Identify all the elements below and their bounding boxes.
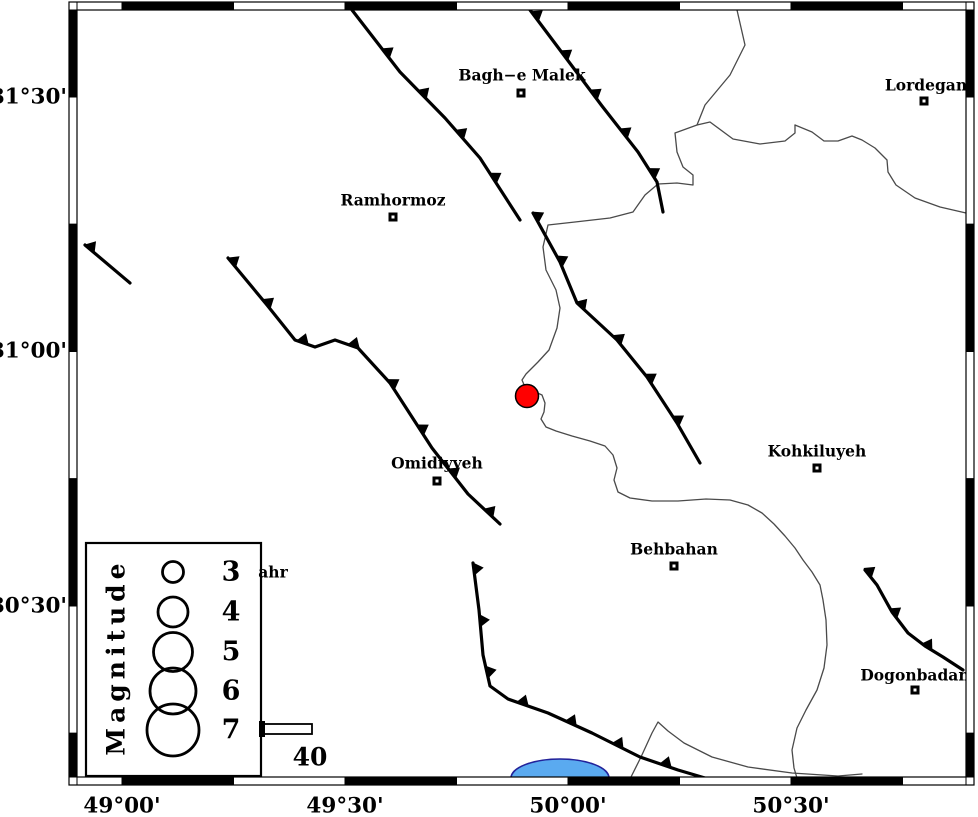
frame-segment-left [69,479,77,606]
scale-bar-rect [262,724,312,734]
axis-label-longitude: 49°00' [83,794,160,817]
city-marker-center [520,92,523,95]
legend-value: 4 [222,597,241,628]
magnitude-legend: Magnitude34567 [86,543,261,776]
axis-label-longitude: 50°30' [752,794,829,817]
city-marker-center [392,216,395,219]
scale-bar-cap [259,721,265,737]
frame-segment-left [69,97,77,224]
axis-label-latitude: 31°30' [0,85,67,110]
legend-value: 5 [222,637,241,668]
frame-segment-right [966,97,974,224]
city-label: Lordegan [885,76,967,95]
legend-value: 3 [222,557,241,588]
frame-segment-top [903,2,967,10]
frame-segment-top [345,2,457,10]
partial-city-label: ahr [258,563,288,582]
city-label: Kohkiluyeh [768,442,867,461]
frame-segment-right [966,352,974,479]
frame-segment-bottom [457,777,569,785]
frame-segment-bottom [345,777,457,785]
legend-value: 7 [222,715,241,746]
city-marker-center [914,689,917,692]
city-label: Ramhormoz [341,191,446,210]
frame-segment-top [122,2,234,10]
city-marker-center [923,100,926,103]
frame-segment-bottom [791,777,903,785]
frame-segment-top [680,2,792,10]
city-label: Bagh−e Malek [458,66,585,85]
legend-value: 6 [222,676,241,707]
frame-segment-left [69,224,77,351]
frame-segment-bottom [903,777,967,785]
frame-segment-bottom [680,777,792,785]
frame-segment-right [966,224,974,351]
map-canvas: Bagh−e MalekLordeganRamhormozOmidiyyehKo… [0,0,978,817]
frame-segment-left [69,733,77,777]
city-label: Dogonbadan [860,666,969,685]
seismicity-map: Bagh−e MalekLordeganRamhormozOmidiyyehKo… [0,0,978,817]
frame-segment-right [966,10,974,97]
city-label: Behbahan [630,540,718,559]
frame-segment-right [966,733,974,777]
frame-segment-bottom [568,777,680,785]
legend-title: Magnitude [102,558,131,755]
city-marker-center [436,480,439,483]
frame-segment-top [568,2,680,10]
axis-label-latitude: 31°00' [0,339,67,364]
frame-segment-left [69,606,77,733]
frame-segment-left [69,10,77,97]
frame-segment-bottom [122,777,234,785]
axis-label-longitude: 50°00' [529,794,606,817]
frame-segment-bottom [234,777,346,785]
frame-segment-bottom [77,777,122,785]
axis-label-longitude: 49°30' [306,794,383,817]
frame-segment-top [234,2,346,10]
frame-segment-right [966,479,974,606]
frame-segment-top [77,2,122,10]
frame-segment-right [966,606,974,733]
frame-segment-top [791,2,903,10]
city-marker-center [673,565,676,568]
axis-label-latitude: 30°30' [0,594,67,619]
frame-segment-top [457,2,569,10]
frame-segment-left [69,352,77,479]
city-label: Omidiyyeh [391,454,483,473]
epicenter-dot [516,385,539,408]
city-marker-center [816,467,819,470]
scale-bar-label: 40 [293,743,328,772]
